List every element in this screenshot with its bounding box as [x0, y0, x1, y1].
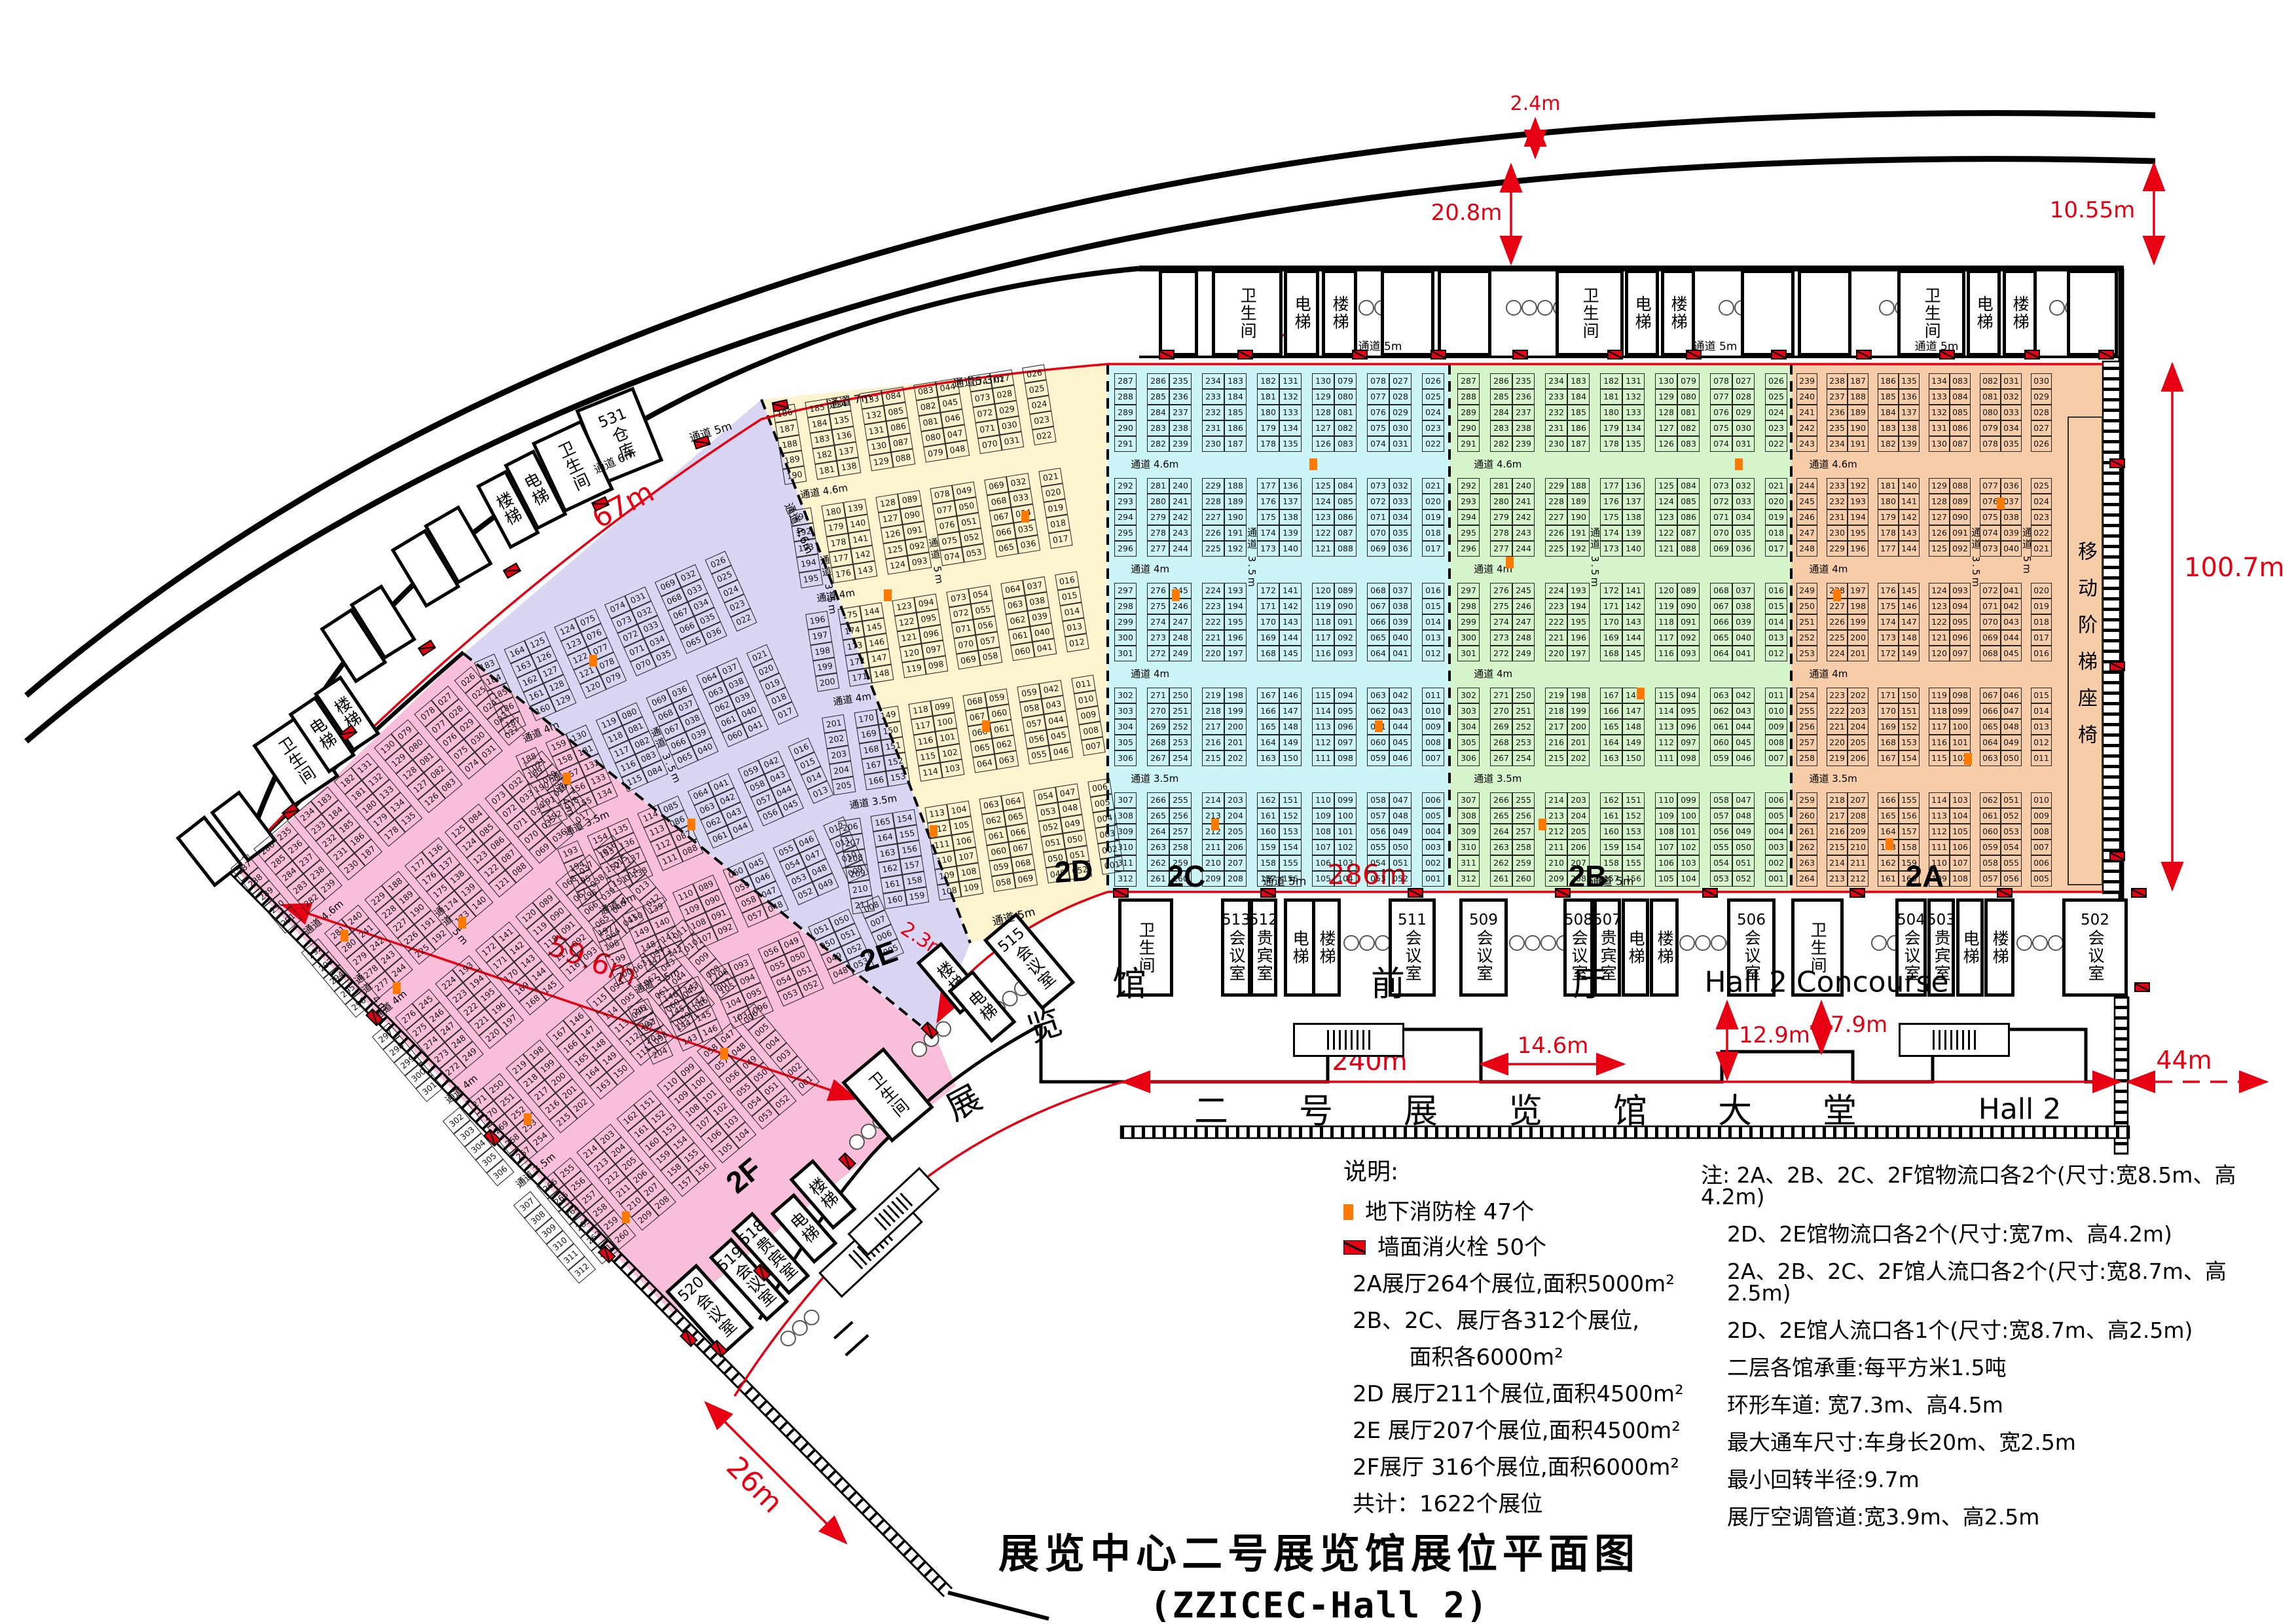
aisle-label: 通道 3.5m [1810, 771, 1857, 785]
legend-heading: 说明: [1343, 1160, 1710, 1184]
booth-cell: 071 [1980, 599, 2001, 614]
booth-cell: 068 [1710, 583, 1732, 599]
booth-cell: 116 [1312, 646, 1334, 661]
booth-cell: 056 [1710, 824, 1732, 840]
room-电梯: 电梯 [1284, 898, 1315, 997]
booth-cell: 100 [1334, 808, 1357, 824]
booth-cell: 011 [2031, 750, 2052, 766]
booth-cell: 062 [1710, 703, 1732, 719]
booth-cell: 173 [1878, 630, 1899, 646]
booth-cell: 103 [1677, 855, 1700, 871]
booth-cell: 129 [1655, 389, 1677, 405]
booth-cell: 176 [1257, 494, 1279, 509]
booth-cell: 281 [1147, 478, 1169, 494]
booth-cell: 103 [1950, 792, 1971, 808]
booth-cell: 044 [1389, 719, 1412, 735]
legend-line: 2A展厅264个展位,面积5000m² [1353, 1273, 1710, 1295]
booth-cell: 221 [1827, 719, 1848, 735]
booth-cell: 183 [1224, 373, 1247, 389]
booth-cell: 126 [1312, 436, 1334, 452]
booth-cell: 279 [1490, 509, 1512, 525]
booth-cell: 096 [1334, 719, 1357, 735]
booth-cell: 041 [1389, 646, 1412, 661]
booth-cell: 277 [1147, 541, 1169, 557]
underground-hydrant-icon [1375, 720, 1383, 732]
booth-cell: 250 [1512, 688, 1535, 703]
booth-cell: 132 [1622, 389, 1645, 405]
room-502会议室: 502会议室 [2062, 898, 2128, 997]
booth-cell: 277 [1490, 541, 1512, 557]
booth-cell: 276 [1490, 583, 1512, 599]
legend-line: 2B、2C、展厅各312个展位, [1353, 1310, 1710, 1332]
booth-cell: 152 [1899, 719, 1920, 735]
booth-cell: 186 [1878, 373, 1899, 389]
booth-grid-2C: 2872882892902912922932942952962972982993… [1114, 373, 1444, 887]
wall-hydrant-icon [1856, 350, 1872, 360]
booth-cell: 259 [1796, 792, 1817, 808]
booth-cell: 110 [1655, 792, 1677, 808]
booth-cell: 196 [1848, 541, 1868, 557]
booth-cell: 007 [1765, 750, 1787, 766]
room-电梯: 电梯 [1622, 898, 1649, 997]
booth-cell: 155 [1899, 792, 1920, 808]
booth-cell: 134 [1279, 420, 1302, 436]
booth-cell: 231 [1202, 420, 1224, 436]
booth-cell: 294 [1457, 509, 1480, 525]
booth-cell: 059 [1710, 750, 1732, 766]
wall-hydrant-icon [1352, 350, 1368, 360]
booth-cell: 199 [1224, 703, 1247, 719]
booth-cell: 122 [1655, 525, 1677, 541]
booth-cell: 001 [1765, 871, 1787, 887]
booth-cell: 087 [1950, 436, 1971, 452]
booth-cell: 201 [1848, 646, 1868, 661]
door-arc [1880, 301, 1894, 315]
booth-cell: 200 [1224, 719, 1247, 735]
booth-cell: 044 [1732, 719, 1755, 735]
aisle-label: 通道 3.5m [1131, 771, 1178, 785]
booth-cell: 180 [1257, 405, 1279, 420]
room-电梯: 电梯 [1967, 270, 2001, 356]
booth-cell: 073 [1710, 478, 1732, 494]
booth-cell: 128 [1655, 405, 1677, 420]
booth-cell: 158 [1257, 855, 1279, 871]
booth-cell: 254 [1796, 688, 1817, 703]
wall-hydrant-icon [1997, 888, 2013, 898]
booth-cell: 262 [1490, 855, 1512, 871]
booth-cell: 042 [2001, 599, 2022, 614]
booth-cell: 266 [1147, 792, 1169, 808]
booth-cell: 289 [1114, 405, 1137, 420]
booth-cell: 136 [1279, 478, 1302, 494]
booth-cell: 006 [1422, 792, 1444, 808]
booth-cell: 292 [1114, 478, 1137, 494]
door-arc [1525, 936, 1540, 950]
booth-cell: 174 [1878, 614, 1899, 630]
booth-cell: 137 [1899, 405, 1920, 420]
booth-grid-2B: 2872882892902912922932942952962972982993… [1457, 373, 1787, 887]
booth-cell: 216 [1827, 824, 1848, 840]
booth-cell: 169 [1878, 719, 1899, 735]
booth-cell: 038 [1732, 599, 1755, 614]
booth-cell: 217 [1545, 719, 1567, 735]
booth-cell: 292 [1457, 478, 1480, 494]
booth-cell: 179 [1600, 420, 1622, 436]
booth-cell: 060 [1010, 642, 1034, 661]
booth-cell: 125 [1929, 541, 1950, 557]
booth-cell: 180 [1600, 405, 1622, 420]
booth-cell: 035 [1389, 525, 1412, 541]
underground-hydrant-icon [563, 773, 571, 784]
booth-cell: 161 [1600, 808, 1622, 824]
label-馆: 馆 [1112, 957, 1146, 1006]
booth-cell: 178 [1878, 525, 1899, 541]
door-arc [1506, 301, 1521, 315]
booth-cell: 122 [1312, 525, 1334, 541]
underground-hydrant-icon [524, 1113, 532, 1125]
booth-cell: 146 [1899, 599, 1920, 614]
booth-cell: 067 [1710, 599, 1732, 614]
booth-cell: 263 [1147, 840, 1169, 855]
door-arc [805, 1310, 819, 1325]
booth-cell: 293 [1114, 494, 1137, 509]
booth-cell: 112 [1929, 824, 1950, 840]
booth-cell: 107 [1950, 855, 1971, 871]
booth-cell: 076 [1367, 405, 1389, 420]
booth-cell: 240 [1169, 478, 1192, 494]
booth-cell: 230 [1545, 436, 1567, 452]
booth-cell: 021 [1422, 478, 1444, 494]
booth-cell: 247 [1796, 525, 1817, 541]
booth-cell: 014 [1422, 614, 1444, 630]
booth-cell: 201 [1224, 735, 1247, 750]
booth-cell: 197 [1224, 646, 1247, 661]
booth-cell: 132 [1929, 405, 1950, 420]
booth-cell: 265 [1490, 808, 1512, 824]
booth-cell: 116 [1929, 735, 1950, 750]
booth-cell: 285 [1147, 389, 1169, 405]
booth-cell: 127 [1655, 420, 1677, 436]
dim-44m: 44m [2156, 1046, 2212, 1075]
booth-cell: 003 [1765, 840, 1787, 855]
booth-cell: 011 [1765, 688, 1787, 703]
booth-cell: 114 [1312, 703, 1334, 719]
booth-cell: 228 [1202, 494, 1224, 509]
booth-cell: 230 [1827, 525, 1848, 541]
booth-cell: 113 [1655, 719, 1677, 735]
booth-cell: 050 [1389, 840, 1412, 855]
booth-cell: 142 [1279, 599, 1302, 614]
booth-cell: 016 [2031, 646, 2052, 661]
booth-cell: 225 [1545, 541, 1567, 557]
booth-cell: 311 [1457, 855, 1480, 871]
booth-cell: 074 [939, 547, 964, 566]
booth-cell: 153 [1899, 735, 1920, 750]
wall-hydrant-icon [1686, 350, 1702, 360]
door-arc [781, 1331, 795, 1346]
booth-cell: 271 [1490, 688, 1512, 703]
underground-hydrant-icon [1886, 838, 1893, 850]
booth-cell: 250 [1169, 688, 1192, 703]
booth-cell: 150 [1279, 750, 1302, 766]
booth-cell: 065 [994, 538, 1018, 557]
booth-cell: 034 [2001, 420, 2022, 436]
booth-cell: 055 [2001, 855, 2022, 871]
booth-cell: 120 [1312, 583, 1334, 599]
booth-cell: 012 [2031, 735, 2052, 750]
door-arc [1538, 301, 1552, 315]
booth-cell: 120 [1655, 583, 1677, 599]
booth-cell: 166 [1257, 703, 1279, 719]
booth-cell: 281 [1490, 478, 1512, 494]
booth-cell: 177 [1600, 478, 1622, 494]
booth-cell: 237 [1169, 405, 1192, 420]
aisle-label: 通道 4m [1131, 667, 1169, 680]
booth-cell: 233 [1202, 389, 1224, 405]
underground-hydrant-icon [1021, 511, 1029, 523]
booth-cell: 233 [1545, 389, 1567, 405]
booth-cell: 064 [1710, 646, 1732, 661]
booth-cell: 178 [1600, 436, 1622, 452]
booth-cell: 175 [1600, 509, 1622, 525]
booth-cell: 228 [1545, 494, 1567, 509]
wall-hydrant-icon [1237, 350, 1253, 360]
booth-cell: 148 [1279, 719, 1302, 735]
booth-cell: 242 [1512, 509, 1535, 525]
booth-cell: 221 [1545, 630, 1567, 646]
booth-cell: 121 [1929, 630, 1950, 646]
booth-cell: 203 [1224, 792, 1247, 808]
booth-cell: 131 [1279, 373, 1302, 389]
door-arc [2033, 936, 2047, 950]
booth-cell: 299 [1457, 614, 1480, 630]
booth-cell: 140 [1622, 541, 1645, 557]
booth-cell: 053 [962, 544, 986, 563]
booth-cell: 295 [1457, 525, 1480, 541]
booth-cell: 079 [923, 443, 947, 462]
door-arc [1719, 301, 1734, 315]
booth-cell: 172 [1878, 646, 1899, 661]
booth-cell: 129 [1929, 478, 1950, 494]
booth-cell: 308 [1457, 808, 1480, 824]
legend-item-underground-hydrant: 地下消防栓 47个 [1343, 1201, 1710, 1223]
wall-hydrant-icon [1939, 350, 1955, 360]
booth-cell: 250 [1796, 599, 1817, 614]
booth-cell: 064 [972, 754, 996, 773]
booth-cell: 042 [1732, 688, 1755, 703]
booth-cell: 204 [1848, 719, 1868, 735]
booth-cell: 301 [1457, 646, 1480, 661]
booth-cell: 056 [1367, 824, 1389, 840]
wall-hydrant-icon [1607, 350, 1623, 360]
booth-cell: 084 [1334, 478, 1357, 494]
booth-cell: 201 [1567, 735, 1590, 750]
booth-cell: 029 [2031, 389, 2052, 405]
room [1798, 270, 1851, 356]
booth-cell: 196 [1567, 630, 1590, 646]
booth-cell: 238 [1827, 373, 1848, 389]
booth-cell: 017 [1765, 541, 1787, 557]
label-二: 二 [1194, 1084, 1228, 1133]
booth-cell: 153 [886, 767, 910, 786]
booth-cell: 166 [864, 771, 888, 790]
label-Hall 2: Hall 2 [1978, 1093, 2061, 1126]
booth-cell: 072 [1710, 494, 1732, 509]
booth-cell: 251 [1169, 703, 1192, 719]
booth-cell: 057 [1980, 871, 2001, 887]
aisle-label: 通道 4.6m [799, 481, 849, 502]
booth-cell: 163 [1257, 750, 1279, 766]
booth-cell: 190 [1848, 420, 1868, 436]
booth-cell: 223 [1545, 599, 1567, 614]
legend-line: 2D 展厅211个展位,面积4500m² [1353, 1383, 1710, 1405]
booth-cell: 071 [1367, 509, 1389, 525]
booth-cell: 022 [2031, 525, 2052, 541]
aisle-label: 通道 4m [1810, 667, 1848, 680]
booth-cell: 092 [1950, 541, 1971, 557]
booth-cell: 068 [1980, 646, 2001, 661]
booth-cell: 107 [1312, 840, 1334, 855]
booth-cell: 268 [1490, 735, 1512, 750]
booth-cell: 211 [1202, 840, 1224, 855]
room-512贵宾室: 512贵宾室 [1250, 898, 1277, 997]
room-楼梯: 楼梯 [1322, 270, 1357, 356]
booth-cell: 029 [1389, 405, 1412, 420]
booth-cell: 066 [1710, 614, 1732, 630]
booth-cell: 309 [1457, 824, 1480, 840]
booth-cell: 195 [1224, 614, 1247, 630]
booth-cell: 238 [1512, 420, 1535, 436]
booth-cell: 192 [1224, 541, 1247, 557]
underground-hydrant-icon [687, 819, 695, 830]
booth-cell: 236 [1827, 405, 1848, 420]
booth-cell: 058 [1980, 855, 2001, 871]
booth-cell: 017 [2031, 630, 2052, 646]
booth-cell: 039 [1389, 614, 1412, 630]
booth-cell: 006 [2031, 855, 2052, 871]
booth-cell: 122 [1929, 614, 1950, 630]
wall-hydrant-icon [2098, 350, 2114, 360]
booth-cell: 306 [1457, 750, 1480, 766]
booth-cell: 304 [1457, 719, 1480, 735]
booth-cell: 207 [1848, 792, 1868, 808]
booth-cell: 244 [1512, 541, 1535, 557]
booth-cell: 055 [1027, 745, 1051, 764]
room-楼梯: 楼梯 [2003, 270, 2037, 356]
booth-cell: 202 [1567, 750, 1590, 766]
door-arc [1344, 936, 1358, 950]
booth-cell: 175 [1878, 599, 1899, 614]
booth-cell: 139 [1899, 436, 1920, 452]
booth-cell: 112 [1655, 735, 1677, 750]
booth-cell: 113 [1312, 719, 1334, 735]
booth-cell: 069 [1710, 541, 1732, 557]
booth-cell: 224 [1827, 646, 1848, 661]
booth-cell: 231 [1827, 509, 1848, 525]
booth-cell: 168 [1257, 646, 1279, 661]
booth-cell: 148 [869, 664, 894, 683]
booth-cell: 249 [1512, 646, 1535, 661]
booth-cell: 177 [1878, 541, 1899, 557]
booth-cell: 166 [1878, 792, 1899, 808]
booth-cell: 070 [977, 435, 1002, 454]
booth-cell: 185 [1567, 405, 1590, 420]
booth-cell: 032 [1732, 478, 1755, 494]
booth-cell: 191 [1224, 525, 1247, 541]
booth-cell: 069 [1367, 541, 1389, 557]
booth-cell: 046 [1732, 750, 1755, 766]
booth-cell: 064 [1367, 646, 1389, 661]
booth-cell: 111 [1929, 840, 1950, 855]
booth-cell: 279 [1147, 509, 1169, 525]
booth-cell: 090 [1950, 509, 1971, 525]
booth-cell: 153 [1279, 824, 1302, 840]
booth-cell: 121 [1655, 541, 1677, 557]
booth-cell: 176 [831, 564, 855, 583]
booth-cell: 029 [1732, 405, 1755, 420]
booth-cell: 109 [1655, 808, 1677, 824]
booth-cell: 300 [1114, 630, 1137, 646]
booth-cell: 282 [1490, 436, 1512, 452]
booth-cell: 102 [1677, 840, 1700, 855]
booth-cell: 060 [1710, 735, 1732, 750]
door-arc [2050, 301, 2064, 315]
booth-cell: 221 [1202, 630, 1224, 646]
booth-cell: 189 [1567, 494, 1590, 509]
label-前: 前 [1371, 957, 1405, 1006]
booth-cell: 283 [1490, 420, 1512, 436]
booth-cell: 119 [1312, 599, 1334, 614]
booth-cell: 206 [1224, 840, 1247, 855]
booth-cell: 098 [1677, 750, 1700, 766]
booth-cell: 243 [1169, 525, 1192, 541]
booth-cell: 173 [1257, 541, 1279, 557]
booth-cell: 026 [1765, 373, 1787, 389]
booth-cell: 005 [1422, 808, 1444, 824]
booth-cell: 043 [1732, 703, 1755, 719]
booth-cell: 013 [1765, 630, 1787, 646]
booth-cell: 189 [1224, 494, 1247, 509]
booth-cell: 286 [1147, 373, 1169, 389]
wall-hydrant-icon [1113, 888, 1129, 898]
booth-cell: 070 [1710, 525, 1732, 541]
booth-cell: 149 [1279, 735, 1302, 750]
booth-cell: 051 [2001, 792, 2022, 808]
booth-cell: 193 [1567, 583, 1590, 599]
room-楼梯: 楼梯 [1984, 898, 2014, 997]
door-arc [2049, 936, 2063, 950]
booth-cell: 001 [1422, 871, 1444, 887]
booth-cell: 154 [1279, 840, 1302, 855]
booth-cell: 025 [1422, 389, 1444, 405]
booth-cell: 225 [1827, 630, 1848, 646]
booth-cell: 142 [1622, 599, 1645, 614]
booth-cell: 219 [1827, 750, 1848, 766]
booth-cell: 291 [1457, 436, 1480, 452]
booth-cell: 104 [1677, 871, 1700, 887]
booth-cell: 088 [1950, 478, 1971, 494]
legend-item-wall-hydrant: 墙面消火栓 50个 [1343, 1236, 1710, 1259]
booth-cell: 004 [1422, 824, 1444, 840]
notes: 注: 2A、2B、2C、2F馆物流口各2个(尺寸:宽8.5m、高4.2m) 2D… [1701, 1164, 2277, 1543]
booth-cell: 115 [1655, 688, 1677, 703]
booth-cell: 091 [1950, 525, 1971, 541]
booth-cell: 237 [1827, 389, 1848, 405]
booth-cell: 008 [1422, 735, 1444, 750]
booth-cell: 215 [1545, 750, 1567, 766]
underground-hydrant-icon [622, 1211, 630, 1223]
label-2C: 2C [1167, 858, 1206, 894]
